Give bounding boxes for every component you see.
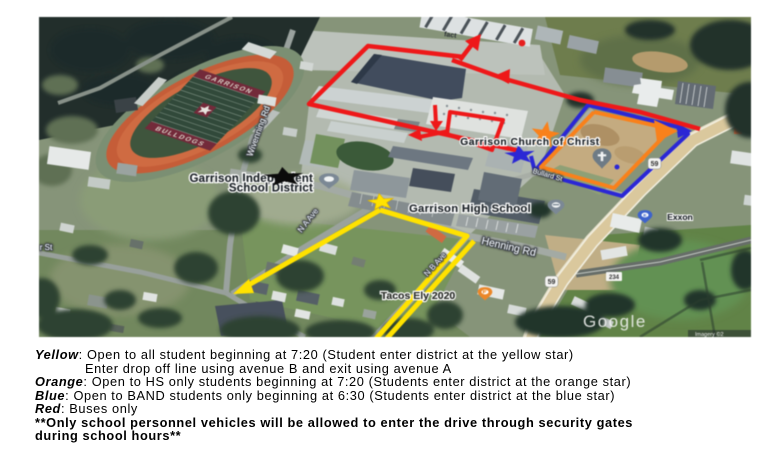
svg-text:234: 234 [609, 275, 620, 281]
svg-text:E: E [643, 213, 647, 217]
svg-text:School District: School District [229, 183, 313, 195]
svg-text:59: 59 [651, 161, 659, 168]
svg-text:r St: r St [40, 243, 53, 252]
svg-text:Tacos Ely 2020: Tacos Ely 2020 [381, 290, 456, 302]
svg-text:Garrison Church of Christ: Garrison Church of Christ [460, 137, 600, 148]
svg-text:Exxon: Exxon [667, 212, 693, 222]
svg-text:Garrison High School: Garrison High School [409, 203, 531, 215]
svg-text:59: 59 [548, 279, 556, 286]
svg-text:Imagery ©2: Imagery ©2 [695, 331, 724, 337]
svg-text:Google: Google [583, 312, 647, 331]
